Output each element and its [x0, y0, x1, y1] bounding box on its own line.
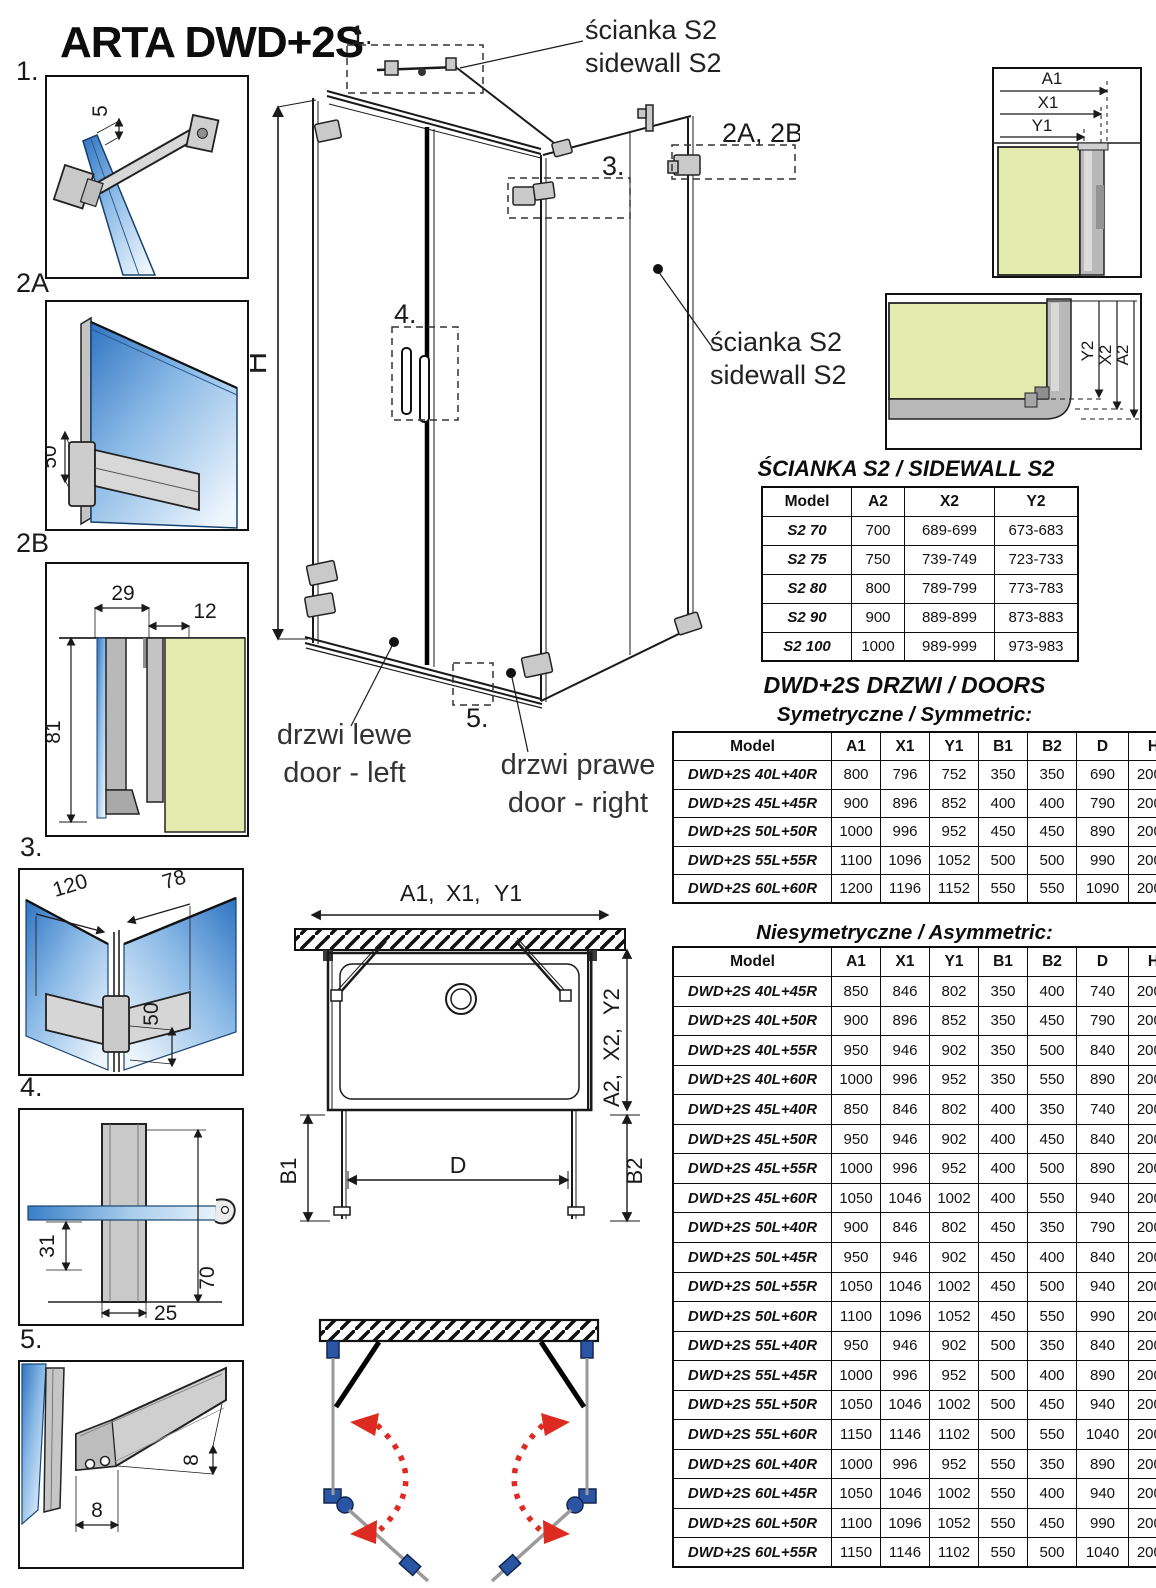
table-row: S2 75750739-749723-733 [762, 545, 1078, 574]
cell: 1002 [930, 1183, 979, 1213]
cell: 2000 [1129, 789, 1156, 818]
cell: 1000 [832, 1154, 881, 1184]
dim-8-vertical: 8 [180, 1454, 203, 1466]
table-row: DWD+2S 40L+55R9509469023505008402000 [673, 1036, 1156, 1066]
dim-81: 81 [45, 720, 65, 743]
cell: 952 [930, 1361, 979, 1391]
cell: 450 [979, 1272, 1028, 1302]
cell: 852 [930, 789, 979, 818]
dim-50: 50 [45, 445, 61, 468]
cell: 1000 [832, 1065, 881, 1095]
cell: DWD+2S 50L+45R [673, 1242, 832, 1272]
cell: 802 [930, 1213, 979, 1243]
cell: 900 [832, 1006, 881, 1036]
cell: DWD+2S 55L+45R [673, 1361, 832, 1391]
callout-3: 3. [602, 151, 625, 181]
swing-arc-right [514, 1425, 543, 1530]
cell: 902 [930, 1124, 979, 1154]
dim-a2: A2 [1113, 345, 1132, 366]
cell: 500 [979, 1331, 1028, 1361]
table-row: DWD+2S 60L+50R1100109610525504509902000 [673, 1508, 1156, 1538]
asymmetric-doors-table: ModelA1X1Y1B1B2DHDWD+2S 40L+45R850846802… [672, 946, 1156, 1568]
sidewall-note-top-en: sidewall S2 [585, 47, 722, 80]
cell: DWD+2S 45L+60R [673, 1183, 832, 1213]
table-row: S2 70700689-699673-683 [762, 516, 1078, 545]
height-dim-label: H [250, 352, 273, 374]
cell: 500 [1028, 1154, 1077, 1184]
cell: DWD+2S 60L+40R [673, 1449, 832, 1479]
cell: DWD+2S 50L+40R [673, 1213, 832, 1243]
table-row: DWD+2S 60L+60R12001196115255055010902000 [673, 875, 1156, 904]
cell: 990 [1077, 846, 1129, 875]
sidewall-table: ModelA2X2Y2S2 70700689-699673-683S2 7575… [761, 486, 1079, 662]
cell: 500 [979, 1420, 1028, 1450]
spec-sheet: ARTA DWD+2S 1. 2A 2B 3. 4. 5. 5 50 81 29… [0, 0, 1156, 1588]
asymmetric-table-title: Niesymetryczne / Asymmetric: [672, 921, 1137, 945]
cell: 450 [1028, 818, 1077, 847]
dim-120: 120 [50, 870, 90, 902]
dim-8-horizontal: 8 [91, 1499, 103, 1522]
cell: 946 [881, 1036, 930, 1066]
cell: 689-699 [905, 516, 995, 545]
table-row: DWD+2S 55L+50R1050104610025004509402000 [673, 1390, 1156, 1420]
cell: 700 [852, 516, 905, 545]
table-row: DWD+2S 60L+45R1050104610025504009402000 [673, 1479, 1156, 1509]
plan-dim-d: D [450, 1152, 467, 1178]
cell: 550 [979, 1449, 1028, 1479]
cell: 2000 [1129, 1183, 1156, 1213]
cell: 350 [1028, 1331, 1077, 1361]
cell: 1050 [832, 1272, 881, 1302]
plan-dim-b1: B1 [276, 1158, 301, 1185]
cell: 1000 [832, 818, 881, 847]
door-left-en: door - left [252, 754, 437, 792]
cell: DWD+2S 55L+55R [673, 846, 832, 875]
detail-1-drawing: 5 [45, 75, 249, 279]
table-row: DWD+2S 50L+40R9008468024503507902000 [673, 1213, 1156, 1243]
cell: DWD+2S 55L+60R [673, 1420, 832, 1450]
symmetric-table-title: Symetryczne / Symmetric: [672, 703, 1137, 727]
plan-dim-a2: A2, [599, 1074, 624, 1107]
table-row: DWD+2S 55L+60R11501146110250055010402000 [673, 1420, 1156, 1450]
cell: 950 [832, 1124, 881, 1154]
cell: 952 [930, 1065, 979, 1095]
cell: DWD+2S 50L+55R [673, 1272, 832, 1302]
cell: 946 [881, 1124, 930, 1154]
cell: 1096 [881, 846, 930, 875]
cell: 739-749 [905, 545, 995, 574]
cell: 952 [930, 1154, 979, 1184]
cell: 1002 [930, 1272, 979, 1302]
column-header: Y2 [995, 487, 1079, 516]
callout-5: 5. [466, 703, 489, 733]
cell: 740 [1077, 977, 1129, 1007]
column-header: Y1 [930, 947, 979, 977]
cell: 400 [979, 1183, 1028, 1213]
cell: 1102 [930, 1420, 979, 1450]
cell: 990 [1077, 1302, 1129, 1332]
column-header: X1 [881, 732, 930, 761]
cell: 2000 [1129, 875, 1156, 904]
dim-78: 78 [160, 868, 189, 894]
callout-4: 4. [394, 299, 417, 329]
cell: 800 [852, 574, 905, 603]
sidewall-note-right-en: sidewall S2 [710, 359, 847, 392]
hardware-brackets [304, 58, 702, 678]
cell: 902 [930, 1242, 979, 1272]
cell: 752 [930, 761, 979, 790]
cell: 900 [852, 603, 905, 632]
cell: 1150 [832, 1420, 881, 1450]
dim-x1: X1 [1038, 93, 1059, 112]
table-row: S2 90900889-899873-883 [762, 603, 1078, 632]
cell: 550 [1028, 1302, 1077, 1332]
cell: 1046 [881, 1390, 930, 1420]
column-header: D [1077, 947, 1129, 977]
cell: 450 [979, 1242, 1028, 1272]
cell: 550 [1028, 1420, 1077, 1450]
cell: 750 [852, 545, 905, 574]
header-row: ModelA1X1Y1B1B2DH [673, 947, 1156, 977]
cell: 500 [979, 846, 1028, 875]
cell: 1040 [1077, 1420, 1129, 1450]
table-row: S2 80800789-799773-783 [762, 574, 1078, 603]
door-right-pl: drzwi prawe [478, 746, 678, 784]
swing-arrows [350, 1413, 570, 1544]
cell: 1052 [930, 1302, 979, 1332]
dim-12: 12 [193, 600, 216, 623]
cell: 902 [930, 1331, 979, 1361]
cell: 996 [881, 818, 930, 847]
cell: 840 [1077, 1036, 1129, 1066]
plan-dim-a1: A1, [400, 880, 435, 906]
sidewall-note-right-pl: ścianka S2 [710, 326, 847, 359]
cell: 896 [881, 1006, 930, 1036]
callout-1: 1. [350, 20, 373, 50]
cell: 2000 [1129, 846, 1156, 875]
cell: DWD+2S 60L+45R [673, 1479, 832, 1509]
cell: 1100 [832, 1508, 881, 1538]
sidewall-table-title: ŚCIANKA S2 / SIDEWALL S2 [726, 456, 1086, 482]
cell: DWD+2S 45L+40R [673, 1095, 832, 1125]
cell: 873-883 [995, 603, 1079, 632]
door-left-label: drzwi lewe door - left [252, 716, 437, 792]
cell: 890 [1077, 818, 1129, 847]
plan-dim-x1: X1, [446, 880, 481, 906]
cell: 350 [1028, 1213, 1077, 1243]
cell: 950 [832, 1036, 881, 1066]
cell: 500 [1028, 1538, 1077, 1568]
corner-detail-bottom: Y2 X2 A2 [885, 293, 1142, 450]
cell: 350 [1028, 761, 1077, 790]
cell: 723-733 [995, 545, 1079, 574]
column-header: D [1077, 732, 1129, 761]
cell: 1150 [832, 1538, 881, 1568]
corner-detail-top: A1 X1 Y1 [992, 67, 1142, 278]
cell: 1090 [1077, 875, 1129, 904]
cell: 2000 [1129, 1449, 1156, 1479]
detail-4-label: 4. [20, 1072, 43, 1103]
cell: 2000 [1129, 1242, 1156, 1272]
cell: 846 [881, 1095, 930, 1125]
cell: 890 [1077, 1154, 1129, 1184]
dim-5: 5 [89, 105, 112, 117]
cell: 350 [979, 1036, 1028, 1066]
plan-view: A1, X1, Y1 A2, X2, Y2 [270, 875, 660, 1240]
cell: 1100 [832, 1302, 881, 1332]
cell: 1196 [881, 875, 930, 904]
cell: DWD+2S 40L+50R [673, 1006, 832, 1036]
cell: 952 [930, 818, 979, 847]
cell: DWD+2S 60L+55R [673, 1538, 832, 1568]
leader-dot-left-door [389, 637, 399, 647]
cell: 2000 [1129, 1124, 1156, 1154]
dim-50: 50 [140, 1002, 163, 1025]
cell: 796 [881, 761, 930, 790]
cell: 500 [1028, 846, 1077, 875]
cell: 940 [1077, 1183, 1129, 1213]
callout-2ab: 2A, 2B [722, 118, 800, 148]
cell: 946 [881, 1331, 930, 1361]
cell: 400 [979, 1095, 1028, 1125]
plan-dim-b2: B2 [622, 1158, 647, 1185]
cell: 500 [979, 1390, 1028, 1420]
cell: 1050 [832, 1390, 881, 1420]
cell: 2000 [1129, 1508, 1156, 1538]
cell: 900 [832, 789, 881, 818]
column-header: X2 [905, 487, 995, 516]
table-row: DWD+2S 60L+40R10009969525503508902000 [673, 1449, 1156, 1479]
detail-3-label: 3. [20, 832, 43, 863]
cell: 900 [832, 1213, 881, 1243]
door-right-label: drzwi prawe door - right [478, 746, 678, 822]
cell: S2 100 [762, 632, 852, 661]
cell: 1046 [881, 1183, 930, 1213]
cell: 400 [979, 789, 1028, 818]
cell: 850 [832, 977, 881, 1007]
cell: 350 [979, 1006, 1028, 1036]
column-header: H [1129, 947, 1156, 977]
cell: 400 [1028, 789, 1077, 818]
cell: 450 [979, 1213, 1028, 1243]
cell: 1096 [881, 1508, 930, 1538]
cell: 2000 [1129, 1006, 1156, 1036]
dim-70: 70 [196, 1266, 219, 1289]
dim-y2: Y2 [1078, 341, 1097, 362]
cell: 840 [1077, 1242, 1129, 1272]
dim-29: 29 [111, 582, 134, 605]
cell: 1200 [832, 875, 881, 904]
cell: 350 [979, 977, 1028, 1007]
cell: 889-899 [905, 603, 995, 632]
cell: 550 [1028, 875, 1077, 904]
column-header: B2 [1028, 732, 1077, 761]
cell: 950 [832, 1331, 881, 1361]
cell: 1000 [832, 1449, 881, 1479]
cell: 1096 [881, 1302, 930, 1332]
table-row: DWD+2S 50L+50R10009969524504508902000 [673, 818, 1156, 847]
cell: 450 [979, 1302, 1028, 1332]
wall-section [320, 1320, 598, 1341]
table-row: DWD+2S 50L+45R9509469024504008402000 [673, 1242, 1156, 1272]
cell: 890 [1077, 1361, 1129, 1391]
cell: DWD+2S 50L+50R [673, 818, 832, 847]
cell: 952 [930, 1449, 979, 1479]
cell: 2000 [1129, 761, 1156, 790]
cell: 450 [1028, 1390, 1077, 1420]
detail-1-label: 1. [16, 56, 39, 87]
cell: 802 [930, 1095, 979, 1125]
cell: 550 [979, 1508, 1028, 1538]
cell: 790 [1077, 1213, 1129, 1243]
cell: 500 [979, 1361, 1028, 1391]
cell: 940 [1077, 1272, 1129, 1302]
cell: S2 80 [762, 574, 852, 603]
cell: 890 [1077, 1449, 1129, 1479]
table-row: DWD+2S 55L+55R1100109610525005009902000 [673, 846, 1156, 875]
detail-2a-drawing: 50 [45, 300, 249, 531]
table-row: DWD+2S 45L+45R9008968524004007902000 [673, 789, 1156, 818]
cell: 940 [1077, 1390, 1129, 1420]
sidewall-note-top: ścianka S2 sidewall S2 [585, 14, 722, 80]
cell: S2 70 [762, 516, 852, 545]
cell: 2000 [1129, 818, 1156, 847]
cell: 996 [881, 1065, 930, 1095]
column-header: Model [673, 947, 832, 977]
cell: DWD+2S 50L+60R [673, 1302, 832, 1332]
cell: 400 [1028, 1361, 1077, 1391]
column-header: A1 [832, 947, 881, 977]
table-row: DWD+2S 40L+60R10009969523505508902000 [673, 1065, 1156, 1095]
cell: 400 [979, 1154, 1028, 1184]
dim-y1: Y1 [1032, 116, 1053, 135]
cell: 500 [1028, 1036, 1077, 1066]
leader-dot-sidewall [653, 264, 663, 274]
detail-2b-label: 2B [16, 528, 49, 559]
cell: 400 [1028, 1479, 1077, 1509]
cell: DWD+2S 40L+55R [673, 1036, 832, 1066]
dim-25: 25 [154, 1302, 177, 1325]
table-row: S2 1001000989-999973-983 [762, 632, 1078, 661]
cell: 2000 [1129, 1538, 1156, 1568]
cell: 2000 [1129, 1154, 1156, 1184]
cell: 550 [1028, 1065, 1077, 1095]
door-swing-diagram [280, 1315, 640, 1588]
column-header: X1 [881, 947, 930, 977]
cell: 673-683 [995, 516, 1079, 545]
cell: 500 [1028, 1272, 1077, 1302]
cell: 2000 [1129, 1420, 1156, 1450]
cell: 1002 [930, 1390, 979, 1420]
cell: 1000 [852, 632, 905, 661]
cell: 990 [1077, 1508, 1129, 1538]
cell: 740 [1077, 1095, 1129, 1125]
detail-4-drawing: 31 25 70 [18, 1108, 244, 1326]
cell: 450 [1028, 1508, 1077, 1538]
cell: DWD+2S 60L+50R [673, 1508, 832, 1538]
cell: 973-983 [995, 632, 1079, 661]
header-row: ModelA1X1Y1B1B2DH [673, 732, 1156, 761]
cell: 1146 [881, 1420, 930, 1450]
cell: 790 [1077, 1006, 1129, 1036]
table-row: DWD+2S 55L+40R9509469025003508402000 [673, 1331, 1156, 1361]
cell: 940 [1077, 1479, 1129, 1509]
cell: DWD+2S 40L+60R [673, 1065, 832, 1095]
cell: 400 [1028, 977, 1077, 1007]
door-right-en: door - right [478, 784, 678, 822]
cell: 2000 [1129, 1095, 1156, 1125]
cell: 950 [832, 1242, 881, 1272]
cell: 773-783 [995, 574, 1079, 603]
symmetric-doors-table: ModelA1X1Y1B1B2DHDWD+2S 40L+40R800796752… [672, 731, 1156, 904]
cell: 850 [832, 1095, 881, 1125]
cell: 350 [1028, 1449, 1077, 1479]
cell: DWD+2S 55L+50R [673, 1390, 832, 1420]
table-row: DWD+2S 45L+60R1050104610024005509402000 [673, 1183, 1156, 1213]
cell: DWD+2S 40L+45R [673, 977, 832, 1007]
cell: 550 [979, 1479, 1028, 1509]
leader-dot-right-door [506, 668, 516, 678]
cell: 890 [1077, 1065, 1129, 1095]
plan-dim-y2: Y2 [599, 988, 624, 1015]
cell: 1040 [1077, 1538, 1129, 1568]
table-row: DWD+2S 50L+55R1050104610024505009402000 [673, 1272, 1156, 1302]
cell: 1046 [881, 1479, 930, 1509]
column-header: Y1 [930, 732, 979, 761]
cell: 846 [881, 977, 930, 1007]
cell: 2000 [1129, 1479, 1156, 1509]
header-row: ModelA2X2Y2 [762, 487, 1078, 516]
doors-table-title: DWD+2S DRZWI / DOORS [672, 672, 1137, 699]
swing-arc-left [377, 1425, 406, 1530]
detail-3-drawing: 120 78 50 [18, 868, 244, 1076]
column-header: B1 [979, 947, 1028, 977]
cell: 1050 [832, 1183, 881, 1213]
cell: 450 [1028, 1006, 1077, 1036]
column-header: A1 [832, 732, 881, 761]
cell: 550 [979, 1538, 1028, 1568]
cell: 450 [979, 818, 1028, 847]
cell: 2000 [1129, 1390, 1156, 1420]
column-header: A2 [852, 487, 905, 516]
cell: 400 [1028, 1242, 1077, 1272]
column-header: B1 [979, 732, 1028, 761]
column-header: Model [762, 487, 852, 516]
cell: 690 [1077, 761, 1129, 790]
detail-2b-drawing: 81 29 12 [45, 562, 249, 837]
table-row: DWD+2S 40L+50R9008968523504507902000 [673, 1006, 1156, 1036]
cell: 840 [1077, 1124, 1129, 1154]
plan-dim-x2: X2, [599, 1028, 624, 1061]
cell: 1152 [930, 875, 979, 904]
plan-dim-y1: Y1 [494, 880, 522, 906]
wall-section [295, 929, 625, 950]
door-left-pl: drzwi lewe [252, 716, 437, 754]
cell: 2000 [1129, 1036, 1156, 1066]
cell: 1052 [930, 846, 979, 875]
column-header: Model [673, 732, 832, 761]
table-row: DWD+2S 60L+55R11501146110255050010402000 [673, 1538, 1156, 1568]
cell: 400 [979, 1124, 1028, 1154]
dim-a1: A1 [1042, 69, 1063, 88]
table-row: DWD+2S 45L+55R10009969524005008902000 [673, 1154, 1156, 1184]
cell: 852 [930, 1006, 979, 1036]
cell: S2 75 [762, 545, 852, 574]
cell: DWD+2S 55L+40R [673, 1331, 832, 1361]
cell: 996 [881, 1154, 930, 1184]
sidewall-note-right: ścianka S2 sidewall S2 [710, 326, 847, 392]
cell: 902 [930, 1036, 979, 1066]
